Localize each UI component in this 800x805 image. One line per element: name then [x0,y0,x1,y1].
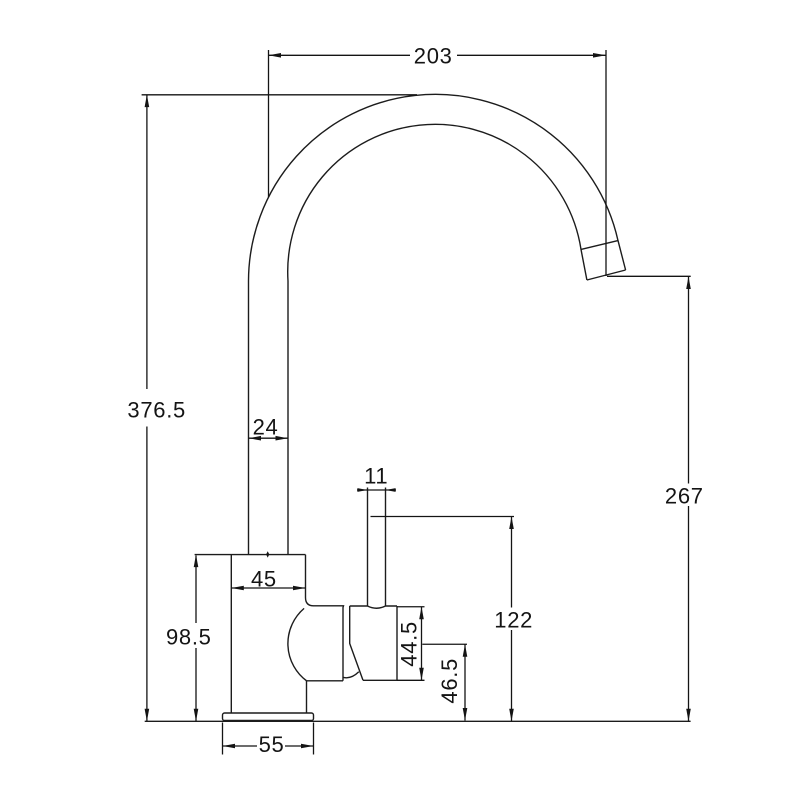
svg-text:98.5: 98.5 [166,625,212,650]
svg-text:44.5: 44.5 [397,621,422,667]
svg-text:55: 55 [259,732,285,757]
svg-text:376.5: 376.5 [127,398,186,423]
svg-text:46.5: 46.5 [437,658,462,704]
svg-text:11: 11 [364,464,388,489]
svg-text:203: 203 [414,44,453,69]
svg-text:267: 267 [665,484,704,509]
svg-text:45: 45 [251,567,277,592]
svg-text:122: 122 [494,608,533,633]
svg-text:24: 24 [253,415,279,440]
